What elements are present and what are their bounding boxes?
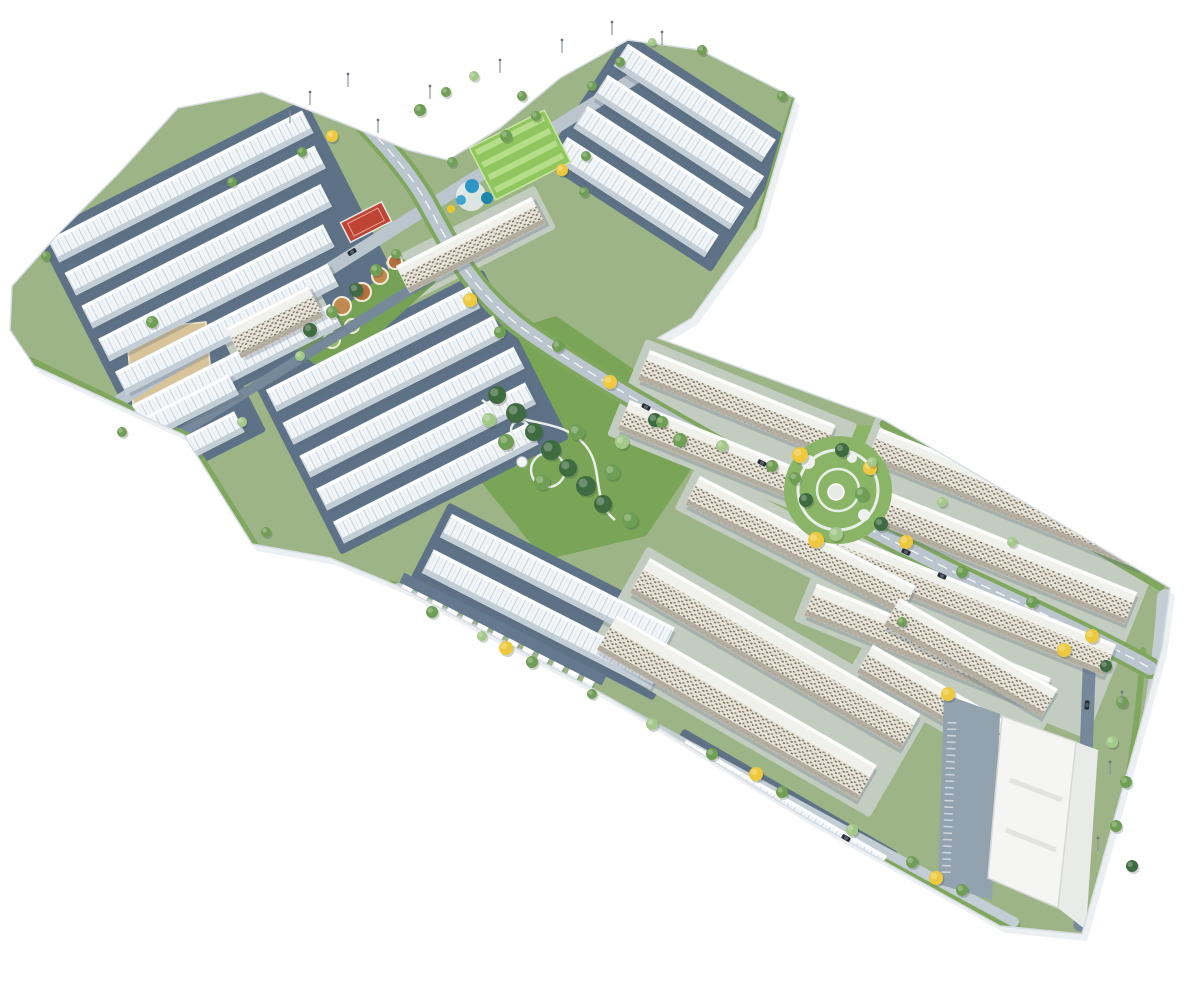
street-lamp bbox=[561, 39, 564, 53]
masterplan-site-rendering bbox=[0, 0, 1200, 1000]
street-lamp bbox=[429, 85, 432, 99]
street-lamp bbox=[611, 21, 614, 35]
pool bbox=[447, 205, 455, 213]
pool bbox=[465, 179, 479, 193]
pool bbox=[481, 192, 493, 204]
street-lamp bbox=[661, 31, 664, 45]
street-lamp bbox=[347, 73, 350, 87]
street-lamp bbox=[377, 119, 380, 133]
water-feature bbox=[517, 457, 528, 468]
street-lamp bbox=[499, 59, 502, 73]
masterplan-canvas bbox=[0, 0, 1200, 1000]
street-lamp bbox=[309, 91, 312, 105]
pool bbox=[456, 195, 466, 205]
car bbox=[1084, 700, 1089, 709]
